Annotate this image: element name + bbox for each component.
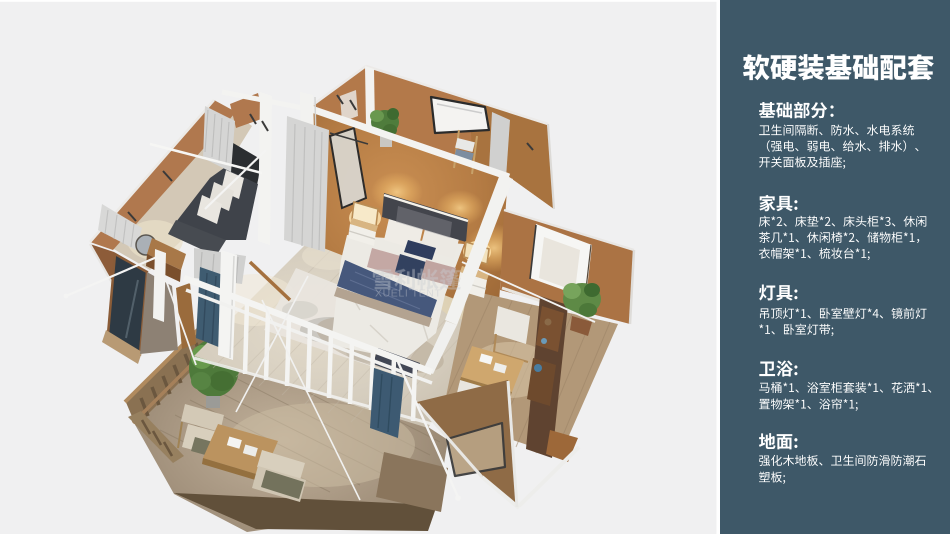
svg-text:XUELI TENT: XUELI TENT — [375, 288, 442, 300]
